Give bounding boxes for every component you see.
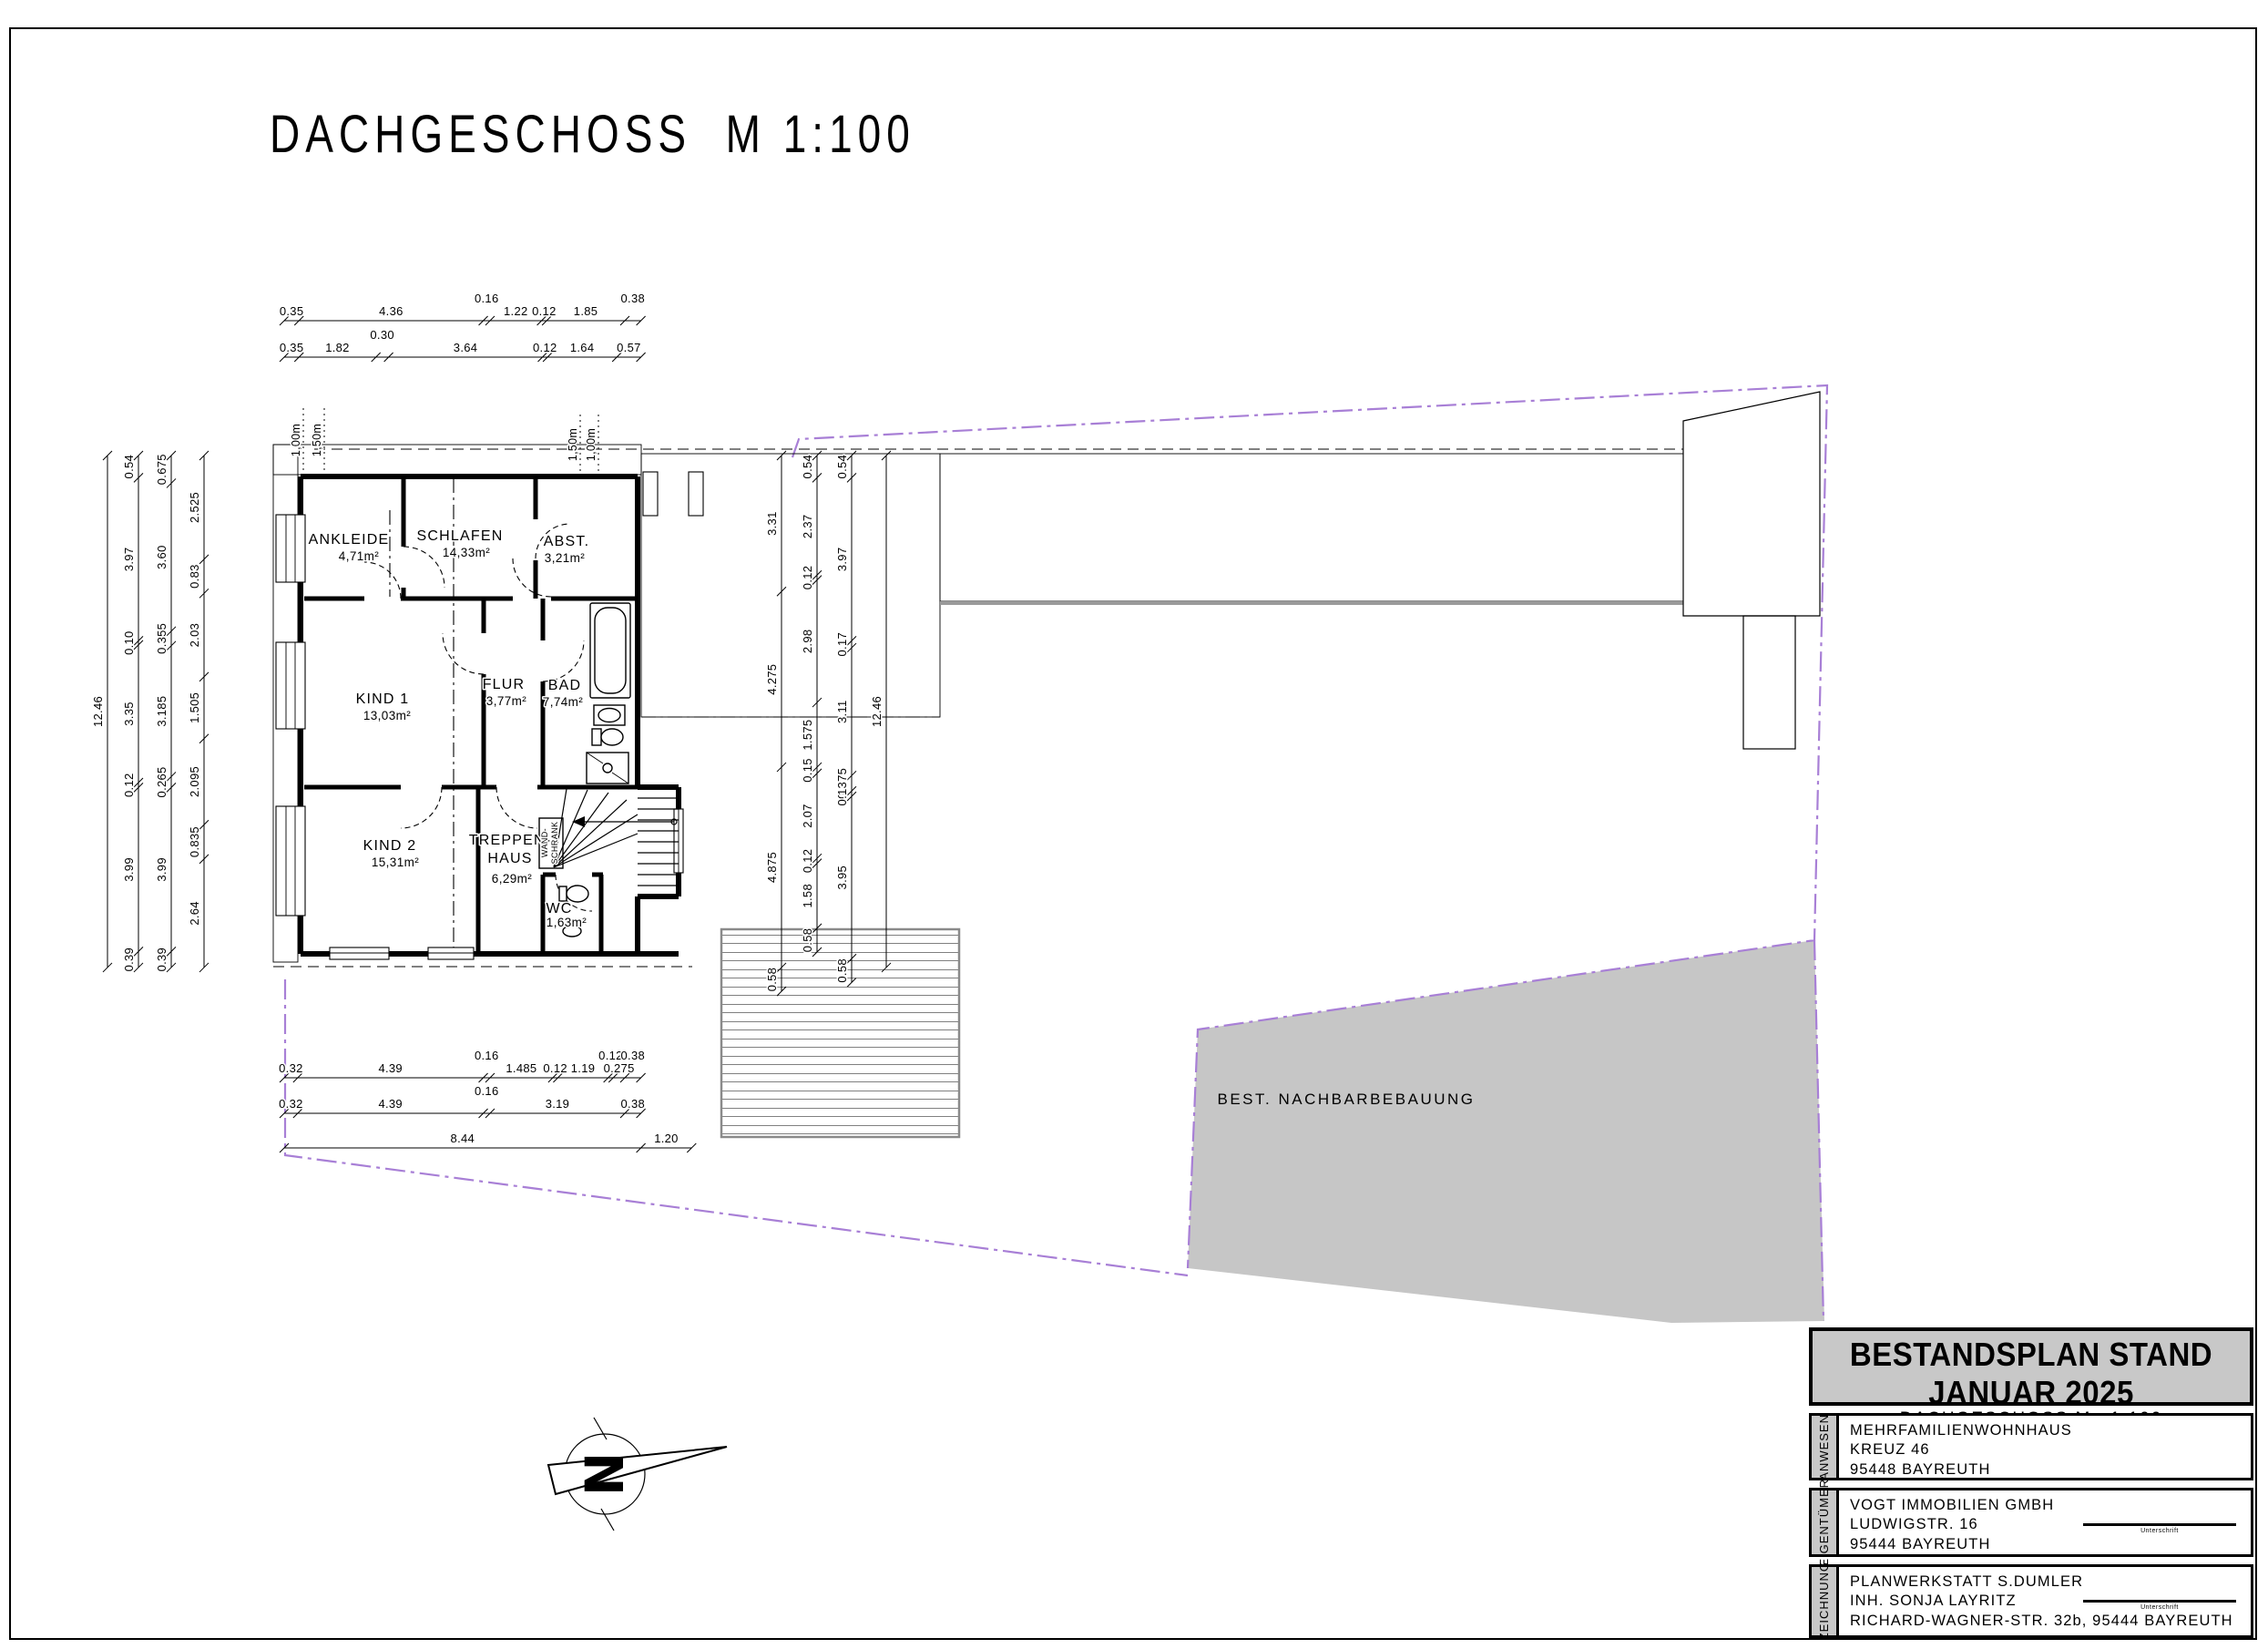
dim-label: 0.54 [801,455,814,479]
room-area-ankleide: 4,71m² [339,549,380,563]
section-label-zeichnung: ZEICHNUNG [1812,1567,1839,1635]
room-area-wc: 1,63m² [547,916,587,929]
dim-label: 3.64 [454,341,478,354]
section-label-anwesen: ANWESEN [1812,1416,1839,1478]
dim-label: 3.185 [155,696,169,727]
dim-label: 0.10 [122,630,136,655]
dim-label: 0.38 [621,1097,646,1111]
dim-label: 1.82 [325,341,350,354]
dim-label: 1.485 [506,1061,536,1075]
room-area-flur: 3,77m² [486,694,527,708]
room-area-schlafen: 14,33m² [443,546,490,559]
room-name-wc: WC [546,901,572,917]
dim-label: 3.99 [155,857,169,882]
toilet [592,729,623,745]
dim-label: 0.12 [533,341,557,354]
room-name-flur: FLUR [483,677,526,692]
wc-toilet [559,886,588,902]
room-name-ankleide: ANKLEIDE [309,532,390,548]
dim-label: 0.12 [801,566,814,590]
zeichnung-line3: RICHARD-WAGNER-STR. 32b, 95444 BAYREUTH [1850,1612,2251,1631]
dim-label: 2.98 [801,630,814,654]
dim-label: 1.575 [801,720,814,751]
room-name-abst: ABST. [544,534,589,549]
dim-chain-left-a: 0.543.970.103.350.123.990.39 [122,451,143,972]
dim-label: 4.275 [765,664,779,695]
shower [587,753,628,784]
dim-label: 2.64 [188,901,201,926]
dim-label: 0.38 [621,1049,646,1062]
title-block-eigentuemer: EIGENTÜMER VOGT IMMOBILIEN GMBH LUDWIGST… [1809,1488,2253,1557]
dim-label: 3.60 [155,545,169,569]
dim-label: 0.16 [475,292,499,305]
dim-label: 2.07 [801,804,814,828]
roof-areas [314,392,1820,749]
roof-hatch-band [940,454,1683,601]
dim-label: 0.39 [122,947,136,972]
dim-chain-bottom-c: 8.441.20 [280,1132,696,1152]
room-name-schlafen: SCHLAFEN [417,528,504,544]
anwesen-line2: KREUZ 46 [1850,1440,2251,1460]
dim-label: 3.97 [122,548,136,572]
dim-chain-mid-c: 0.543.970.173.110.3750.133.950.58 [835,451,856,987]
dim-chain-left-b: 0.6753.600.3553.1850.2653.990.39 [155,451,176,972]
dim-label: 3.95 [835,865,849,890]
room-name-treppenhaus2: HAUS [487,851,532,866]
room-name-bad: BAD [548,678,582,693]
dim-label: 1.22 [504,304,528,318]
knee-label: 1,50m [567,428,579,461]
dim-label: 0.54 [835,455,849,479]
dim-label: 4.875 [765,852,779,883]
dim-label: 0.675 [155,454,169,485]
knee-label: 1,50m [311,424,323,456]
room-area-abst: 3,21m² [545,551,586,565]
dim-label: 4.39 [378,1097,403,1111]
room-labels: ANKLEIDE 4,71m² SCHLAFEN 14,33m² ABST. 3… [309,528,590,929]
dim-label: 0.16 [475,1084,499,1098]
roof-opening [689,472,703,516]
title-block-header: BESTANDSPLAN STAND JANUAR 2025 DACHGESCH… [1809,1327,2253,1406]
room-name-treppenhaus: TREPPEN- [469,833,552,848]
room-area-kind2: 15,31m² [372,855,419,869]
dim-label: 2.525 [188,492,201,523]
dim-label: 0.32 [279,1061,303,1075]
fixtures [539,603,630,937]
north-arrow: N [548,1418,727,1531]
dim-chain-bottom-b: 0.324.390.163.190.38 [279,1084,645,1118]
dim-label: 0.12 [543,1061,567,1075]
dim-label: 1.505 [188,692,201,723]
dim-label: 3.11 [835,700,849,723]
dim-label: 0.12 [122,773,136,797]
dim-chain-mid-total: 12.46 [870,451,891,972]
sink [594,705,625,725]
dim-label: 0.35 [280,341,304,354]
dim-label: 0.58 [801,928,814,953]
dim-label: 0.83 [188,564,201,589]
anwesen-line1: MEHRFAMILIENWOHNHAUS [1850,1421,2251,1440]
wall-cabinet-label: WAND- [540,828,549,857]
dim-label: 0.12 [532,304,557,318]
dim-label: 2.095 [188,766,201,797]
dim-label: 0.275 [604,1061,635,1075]
knee-label: 1,00m [290,424,302,456]
dim-label: 3.97 [835,548,849,572]
dim-label: 0.58 [835,958,849,983]
bathtub [590,603,630,698]
plan-status-title: BESTANDSPLAN STAND JANUAR 2025 [1813,1336,2250,1412]
dim-label: 0.39 [155,947,169,972]
dim-label: 0.16 [475,1049,499,1062]
dim-label: 0.35 [280,304,304,318]
dim-chain-top-b: 0.351.820.303.640.121.640.57 [280,328,646,362]
dim-label: 3.99 [122,857,136,882]
dim-label: 0.57 [617,341,641,354]
title-block-anwesen: ANWESEN MEHRFAMILIENWOHNHAUS KREUZ 46 95… [1809,1413,2253,1480]
dim-label: 1.20 [654,1132,679,1145]
eigentuemer-line3: 95444 BAYREUTH [1850,1535,2251,1554]
dim-label: 0.32 [279,1097,303,1111]
dim-label: 3.35 [122,702,136,726]
section-label-eigentuemer: EIGENTÜMER [1812,1490,1839,1554]
dim-chain-left-total: 12.46 [91,451,112,972]
eigentuemer-line1: VOGT IMMOBILIEN GMBH [1850,1496,2251,1515]
room-area-bad: 7,74m² [543,695,584,709]
dim-label: 12.46 [91,696,105,727]
dim-label: 2.03 [188,623,201,648]
stairs [554,789,679,886]
room-name-kind1: KIND 1 [356,691,410,707]
room-area-treppenhaus: 6,29m² [492,872,533,886]
dim-label: 0.58 [765,968,779,992]
dim-label: 0.30 [370,328,394,342]
dim-label: 0.38 [621,292,646,305]
north-letter: N [574,1452,636,1497]
dim-chain-left-c: 2.5250.832.031.5052.0950.8352.64 [188,451,209,972]
room-name-kind2: KIND 2 [363,838,417,854]
dim-chain-top-a: 0.354.360.161.220.121.850.38 [280,292,646,325]
dim-label: 3.31 [765,511,779,536]
dim-label: 0.12 [598,1049,623,1062]
dim-label: 2.37 [801,515,814,539]
dim-label: 4.36 [379,304,404,318]
dim-label: 1.64 [570,341,595,354]
dim-label: 1.85 [574,304,598,318]
dim-chain-bottom-a: 0.324.390.161.4850.121.190.120.2750.38 [279,1049,645,1082]
neighbor-label: BEST. NACHBARBEBAUUNG [1218,1091,1476,1108]
dim-label: 0.15 [801,758,814,783]
neighbor-building: BEST. NACHBARBEBAUUNG [1188,940,1824,1323]
dim-label: 0.54 [122,455,136,479]
roof-hatch-right [1683,392,1820,616]
roof-hatch-dense [641,454,940,717]
roof-opening [643,472,658,516]
dim-label: 0.355 [155,623,169,654]
dim-label: 0.13 [835,782,849,806]
signature-line: Unterschrift [2083,1523,2236,1535]
dim-label: 3.19 [546,1097,570,1111]
dim-label: 1.58 [801,884,814,908]
dim-label: 8.44 [451,1132,475,1145]
dim-label: 0.835 [188,826,201,857]
dim-chain-mid-b: 0.542.370.122.981.5750.152.070.121.580.5… [801,451,822,957]
dim-label: 0.12 [801,849,814,874]
dim-label: 0.17 [835,632,849,657]
dim-label: 0.265 [155,766,169,797]
title-block: BESTANDSPLAN STAND JANUAR 2025 DACHGESCH… [1804,1324,2258,1640]
knee-label: 1,00m [585,428,598,461]
wall-cabinet-label2: SCHRANK [550,822,559,865]
signature-line: Unterschrift [2083,1600,2236,1612]
room-area-kind1: 13,03m² [363,709,411,722]
anwesen-line3: 95448 BAYREUTH [1850,1460,2251,1480]
zeichnung-line1: PLANWERKSTATT S.DUMLER [1850,1572,2251,1592]
title-block-zeichnung: ZEICHNUNG PLANWERKSTATT S.DUMLER INH. SO… [1809,1564,2253,1638]
dim-label: 4.39 [378,1061,403,1075]
dim-label: 12.46 [870,696,884,727]
exterior-stair-strip [1743,616,1795,749]
dim-chain-mid-a: 3.314.2754.8750.58 [765,451,786,996]
dim-label: 1.19 [571,1061,596,1075]
